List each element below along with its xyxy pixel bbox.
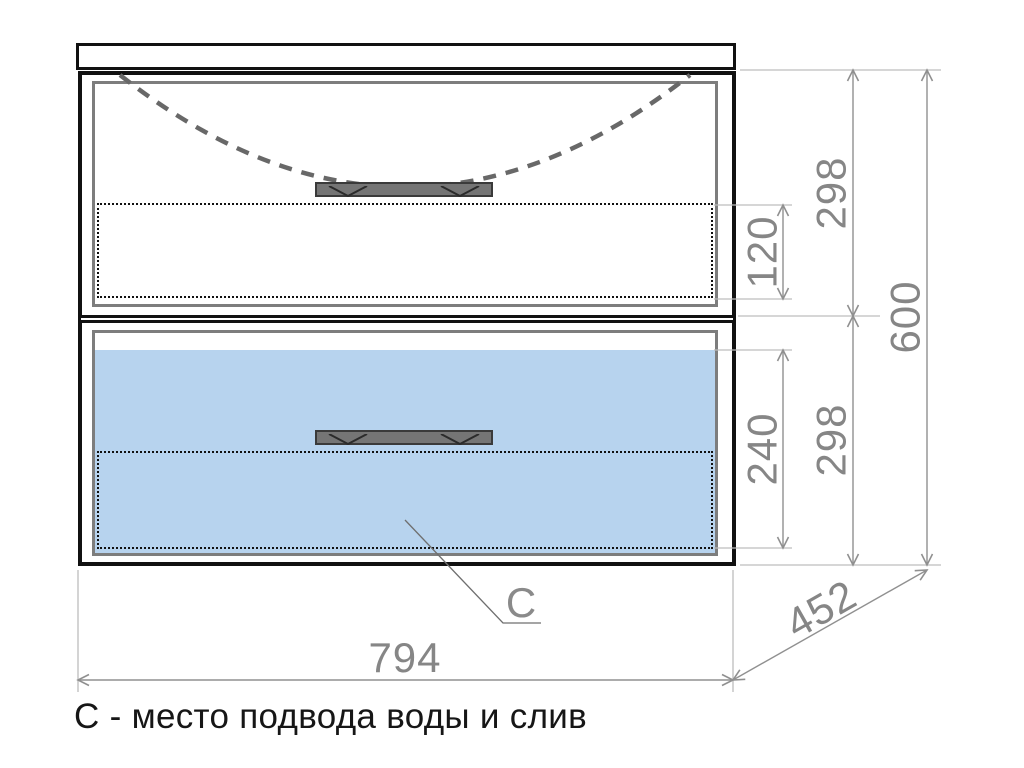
bottom-drawer-handle <box>315 430 493 445</box>
dim-label-298-bottom: 298 <box>808 403 855 476</box>
caption-text: С - место подвода воды и слив <box>74 697 587 737</box>
dim-label-240: 240 <box>739 412 786 485</box>
handle-chevron-marks-icon <box>317 186 491 197</box>
top-drawer-inner-dotted-outline <box>97 203 713 298</box>
dim-line-452 <box>733 570 927 680</box>
dim-label-794: 794 <box>368 634 441 681</box>
top-drawer-handle <box>315 182 493 197</box>
technical-drawing-canvas: 120 298 298 240 600 794 452 C С - место … <box>0 0 1024 768</box>
connection-point-label: C <box>506 579 536 626</box>
bottom-drawer-inner-dotted-outline <box>97 451 713 549</box>
handle-chevron-marks-icon <box>317 434 491 445</box>
dim-label-600: 600 <box>882 280 929 353</box>
section-divider <box>81 315 733 323</box>
dim-label-452: 452 <box>778 571 865 648</box>
dim-label-120: 120 <box>739 215 786 288</box>
countertop <box>76 43 736 70</box>
dim-label-298-top: 298 <box>808 156 855 229</box>
